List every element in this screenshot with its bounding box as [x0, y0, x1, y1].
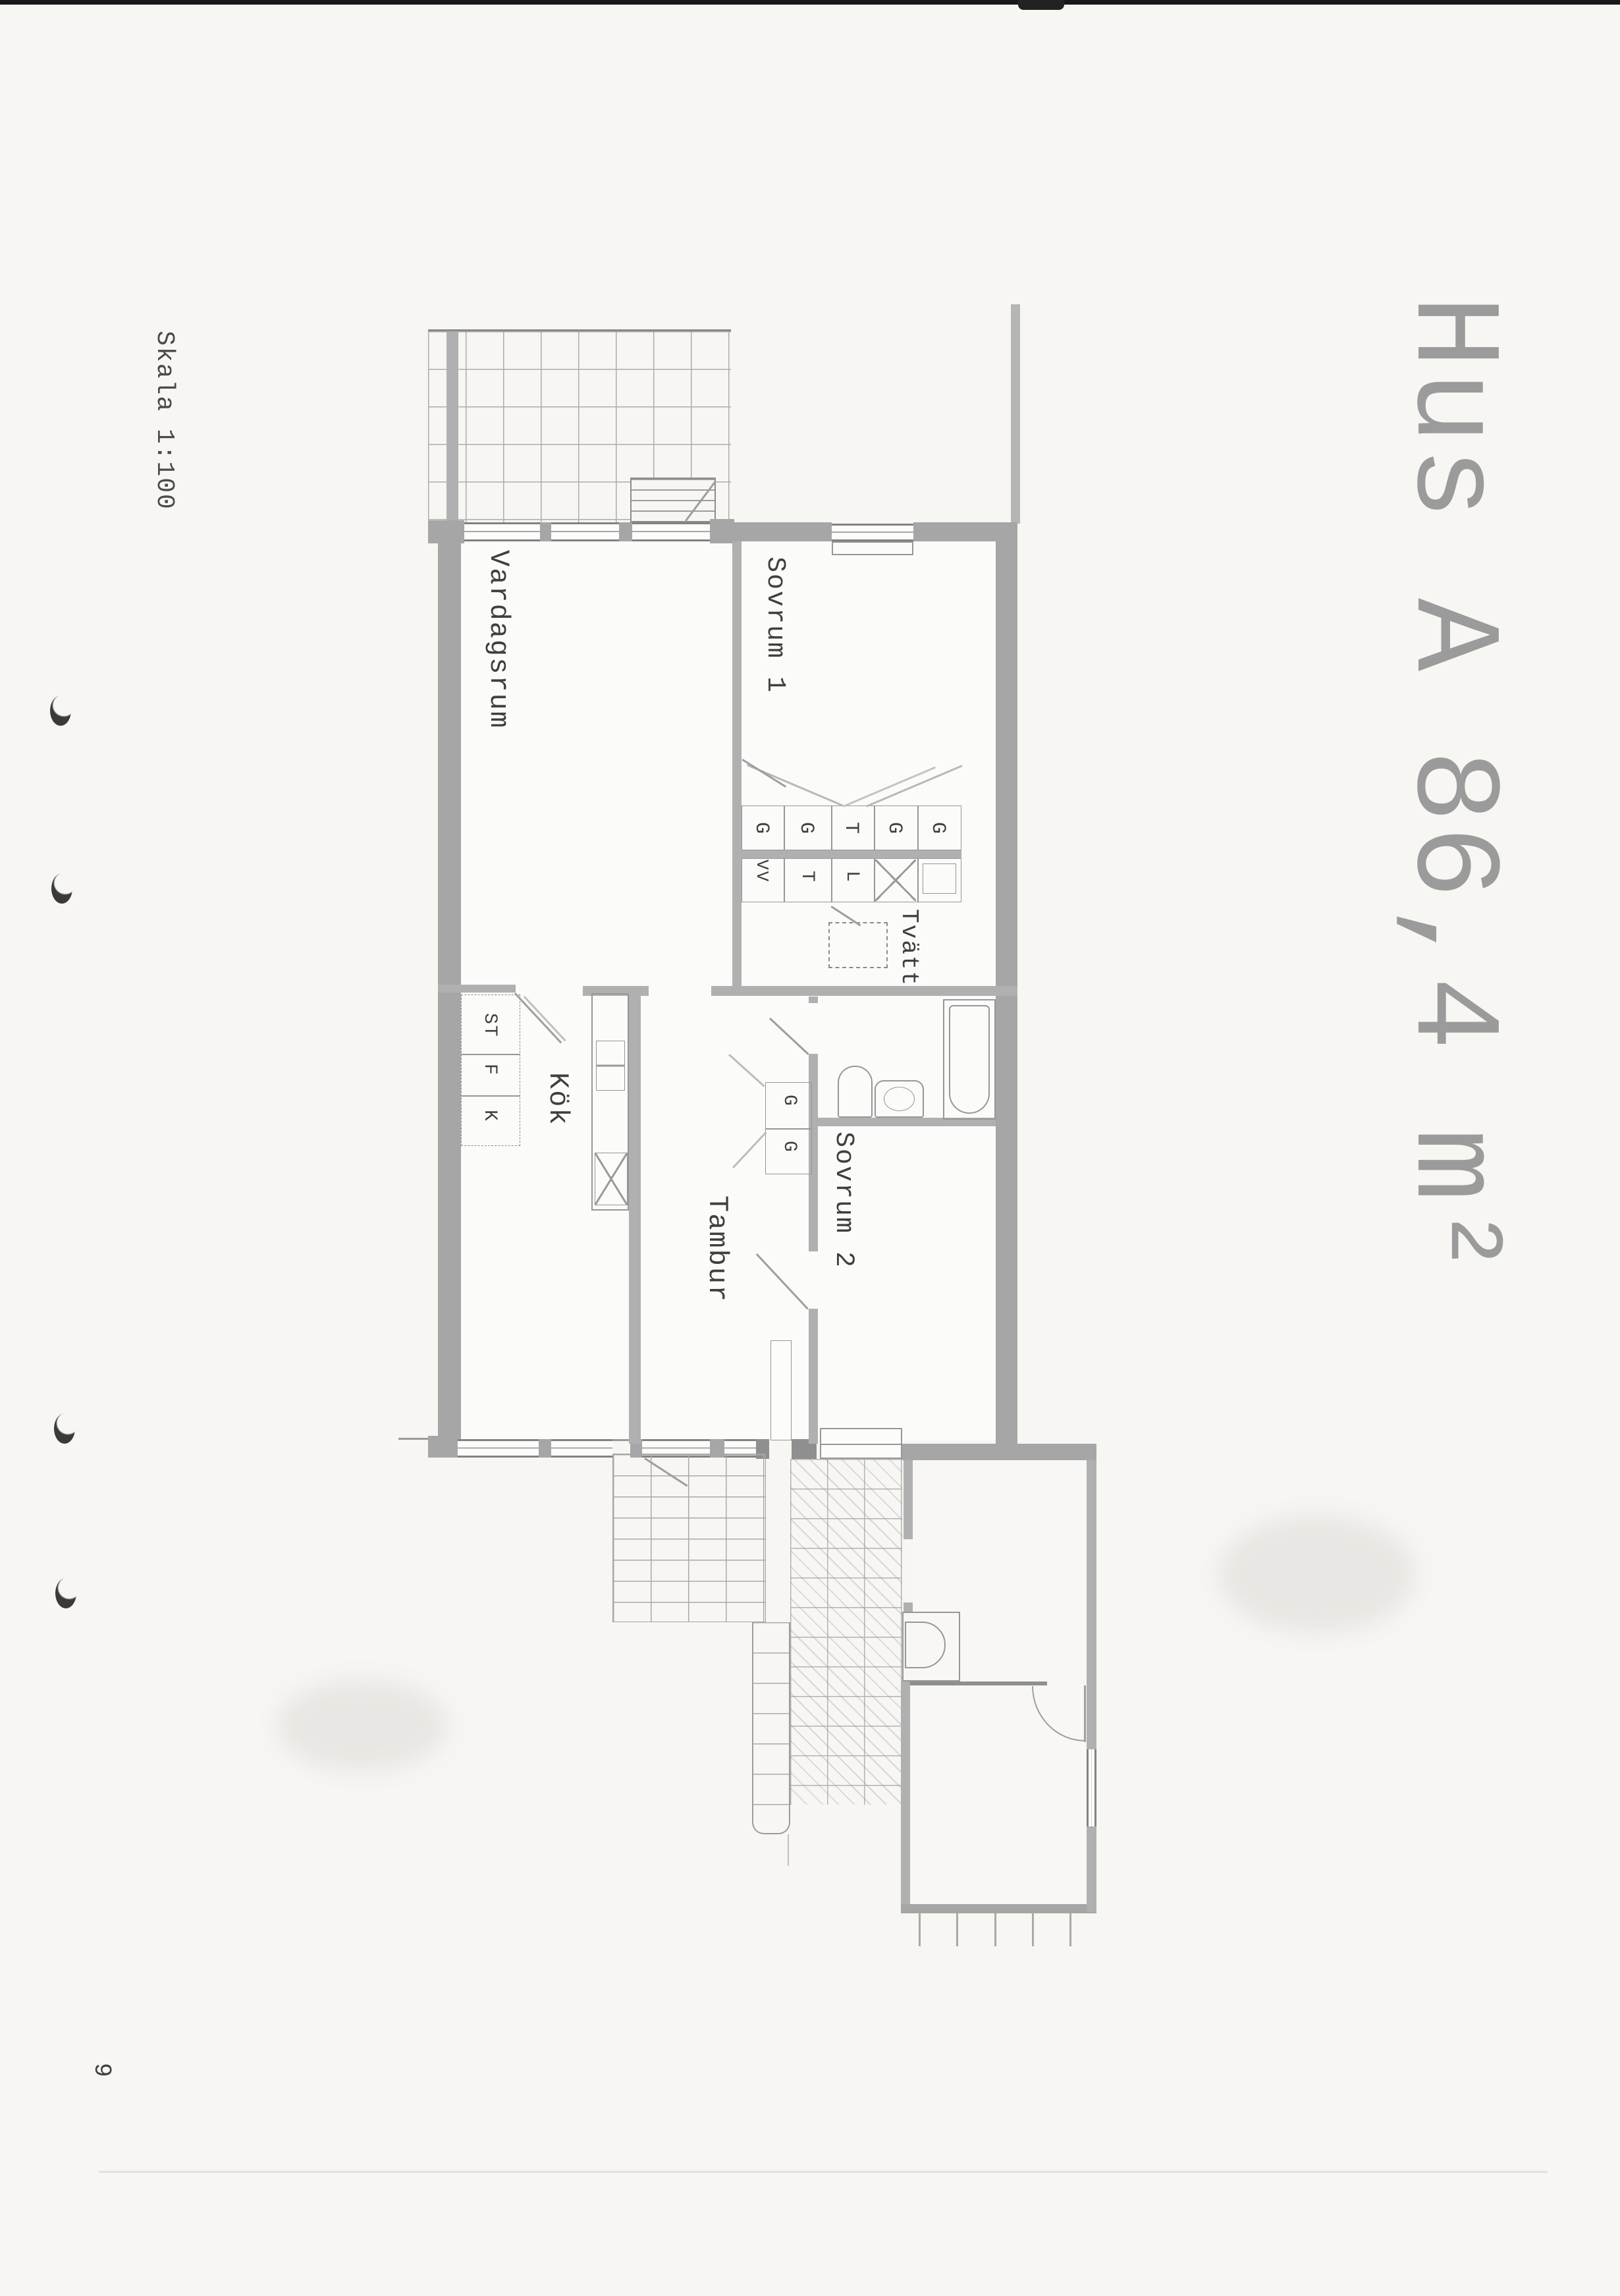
wall-top-pier-1	[540, 522, 551, 541]
diagonal-paving	[790, 1459, 902, 1805]
page-number: 9	[90, 2063, 113, 2079]
window-bottom-1	[458, 1439, 539, 1458]
annex-wall-bottom	[901, 1904, 1096, 1913]
closet-letter: VV	[753, 860, 770, 883]
wall-bottom-corner-left	[428, 1436, 458, 1458]
washing-machine-icon	[875, 860, 916, 901]
kitchen-cab-div-2	[461, 1095, 520, 1097]
annex-wall-right-upper	[1087, 1460, 1096, 1749]
hall-closet-divider	[765, 1128, 812, 1130]
scan-blob-top	[1018, 0, 1064, 10]
cabinet-letter: F	[480, 1064, 499, 1076]
porch-pavers	[612, 1454, 766, 1622]
bathtub-inner	[949, 1005, 990, 1114]
scale-label: Skala 1:100	[151, 331, 176, 510]
scan-edge-top	[0, 0, 1620, 5]
wall-vardagsrum-kok-stub	[438, 985, 516, 993]
closet-letter: L	[842, 871, 861, 883]
hole-punch-3	[54, 1413, 75, 1444]
annex-divider-wall	[901, 1681, 1047, 1685]
window-sovrum2-inner	[820, 1444, 902, 1459]
toilet-icon	[838, 1066, 873, 1118]
cabinet-letter: K	[480, 1110, 499, 1122]
scan-smudge-2	[1218, 1515, 1416, 1633]
closet-letter: G	[928, 822, 948, 835]
window-sovrum1-sill	[832, 541, 913, 555]
wall-tvatt-bath-top	[711, 986, 1017, 996]
closet-letter: G	[796, 822, 816, 835]
window-sovrum1	[832, 524, 913, 541]
wall-closet-rows	[742, 850, 961, 858]
entry-door-leaf	[770, 1340, 792, 1440]
laundry-sink	[923, 863, 956, 894]
window-bottom-2	[551, 1439, 612, 1458]
wall-vardagsrum-sovrum1	[732, 541, 742, 988]
annex-window-right	[1087, 1749, 1096, 1826]
annex-wall-left	[901, 1681, 910, 1912]
wall-tambur-east-low	[809, 1309, 818, 1444]
page-title: Hus A 86,4 m²	[1390, 295, 1511, 1280]
closet-row1-div-3	[874, 806, 875, 850]
room-label-sovrum2: Sovrum 2	[830, 1132, 856, 1269]
room-label-kok: Kök	[544, 1072, 572, 1126]
closet-letter: G	[751, 822, 771, 835]
closet-row1-div-1	[784, 806, 785, 850]
laundry-appliance-dashed	[828, 922, 888, 968]
closet-letter: T	[841, 822, 861, 835]
fence-tick-5	[1069, 1913, 1071, 1946]
walkway-continuation	[788, 1834, 789, 1866]
fence-tick-2	[956, 1913, 958, 1946]
stove-icon	[595, 1153, 628, 1205]
closet-letter: T	[797, 871, 816, 883]
kitchen-sink	[596, 1041, 625, 1091]
wall-top-block	[710, 519, 734, 543]
room-label-tvatt: Tvätt	[897, 909, 921, 987]
wall-bottom-face-line	[398, 1438, 428, 1440]
wall-kok-tambur	[629, 986, 641, 1444]
annex-door-leaf	[1084, 1685, 1086, 1742]
fence-tick-1	[919, 1913, 921, 1946]
terrace-door-opening	[612, 1439, 630, 1441]
scan-crease-line	[99, 2171, 1548, 2173]
closet-row1-div-4	[917, 806, 919, 850]
closet-letter: G	[780, 1141, 798, 1153]
closet-row2-div-4	[917, 858, 919, 902]
wall-tambur-bath-stub	[809, 997, 818, 1003]
wall-bottom-right-annex-top	[902, 1444, 1096, 1460]
washbasin-bowl	[884, 1087, 915, 1111]
deck-edge-line	[428, 329, 731, 331]
cabinet-letter: ST	[480, 1013, 499, 1038]
yard-wall-spur	[1011, 304, 1020, 524]
window-sovrum2-outer	[820, 1428, 902, 1445]
closet-letter: G	[780, 1095, 798, 1107]
hole-punch-2	[51, 873, 72, 904]
fence-tick-4	[1032, 1913, 1034, 1946]
garden-walkway	[752, 1622, 790, 1834]
hole-punch-4	[55, 1578, 76, 1608]
window-top-1	[464, 522, 540, 541]
scan-smudge-1	[277, 1680, 448, 1772]
window-top-2	[551, 522, 619, 541]
fence-tick-3	[994, 1913, 996, 1946]
scanned-floorplan-page: Hus A 86,4 m² Skala 1:100 9	[0, 0, 1620, 2296]
closet-row2-div-1	[784, 858, 785, 902]
kitchen-cab-div-1	[461, 1054, 520, 1055]
hole-punch-1	[50, 696, 71, 726]
room-label-sovrum1: Sovrum 1	[761, 557, 788, 694]
deck-steps	[630, 478, 716, 522]
wall-top-pier-2	[619, 522, 632, 541]
closet-row2-div-2	[831, 858, 832, 902]
window-top-3	[632, 522, 710, 541]
room-label-vardagsrum: Vardagsrum	[485, 550, 512, 729]
deck-left-wall	[446, 331, 458, 522]
wall-top-seg-2	[913, 522, 996, 541]
annex-wall-right-lower	[1087, 1826, 1096, 1912]
closet-row1-div-2	[831, 806, 832, 850]
room-label-tambur: Tambur	[703, 1195, 731, 1303]
wall-bottom-pier-1	[539, 1439, 551, 1458]
closet-letter: G	[884, 822, 904, 835]
wall-top-seg-1	[734, 522, 832, 541]
forrad-wall-left-upper	[904, 1460, 913, 1539]
